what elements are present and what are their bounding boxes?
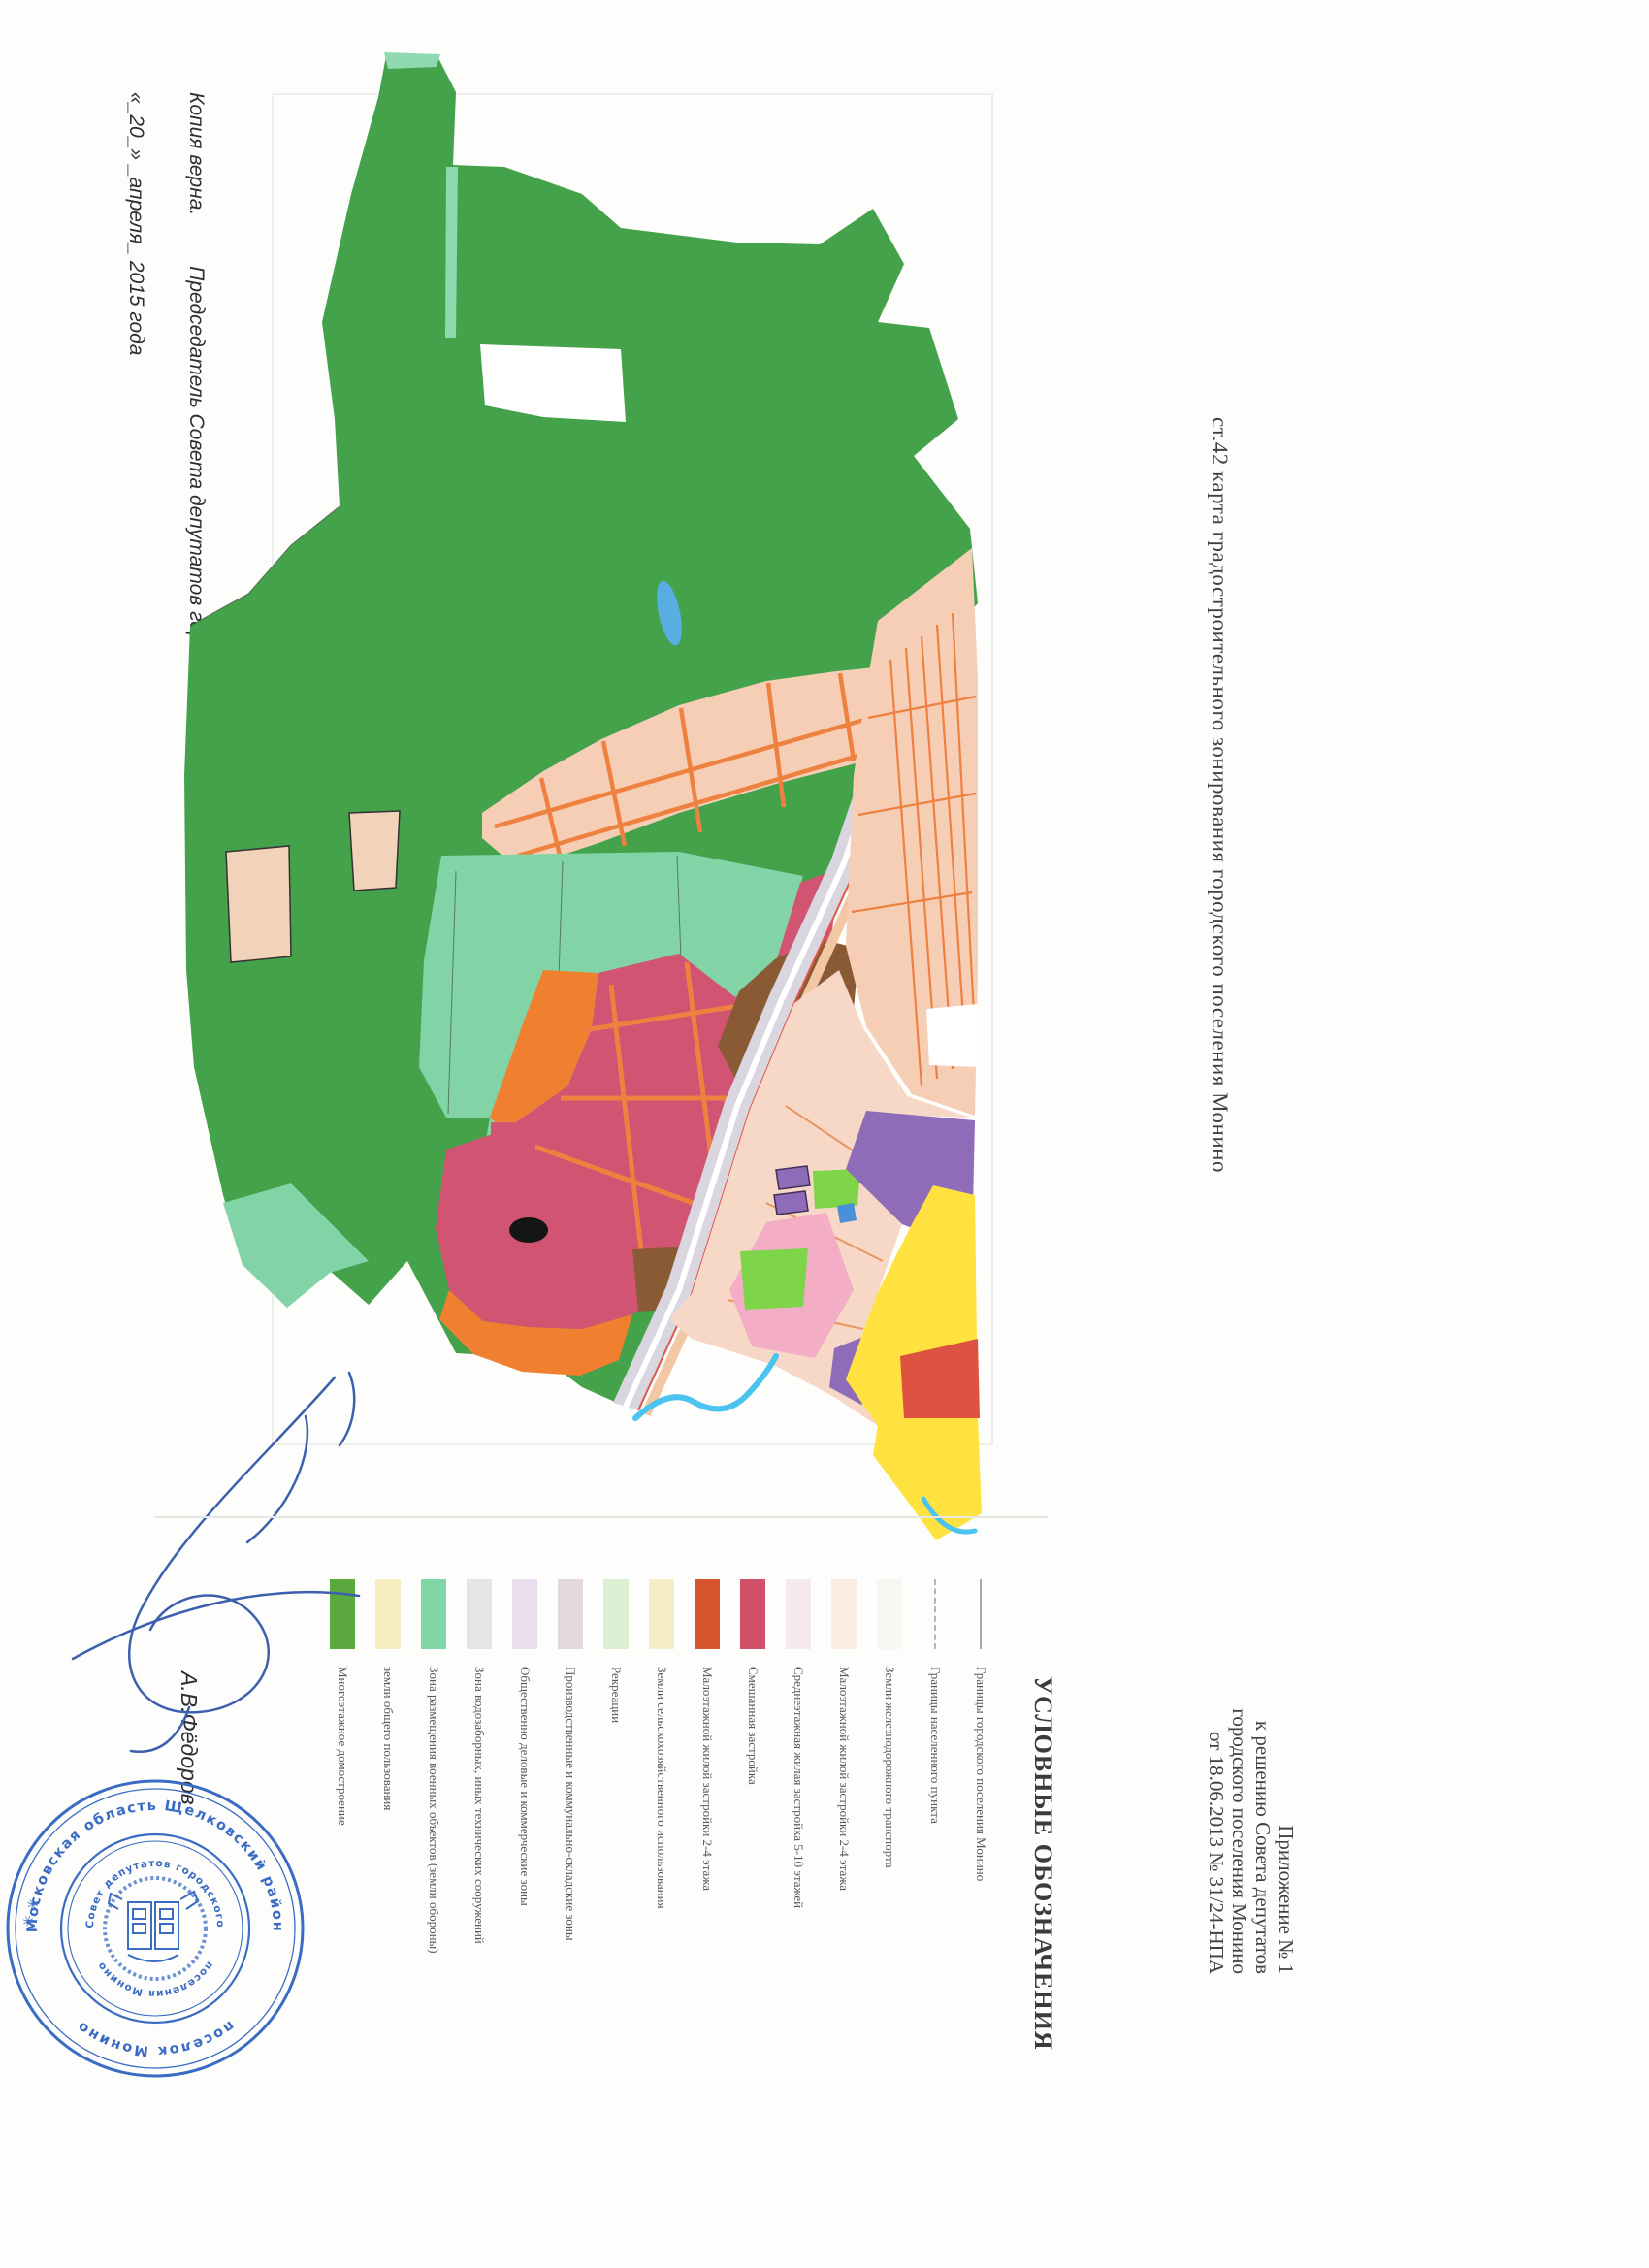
- map-zone-green-patch-1: [740, 1248, 808, 1310]
- legend-swatch: [512, 1579, 537, 1649]
- legend-row: Земли сельскохозяйственного использовани…: [649, 1579, 674, 2122]
- legend-row: Смешанная застройка: [740, 1579, 765, 2122]
- appendix-line-3: городского поселения Монино: [1228, 1654, 1251, 1974]
- legend-row: Земли железнодорожного транспорта: [877, 1579, 902, 2122]
- appendix-line-4: от 18.06.2013 № 31/24-НПА: [1205, 1654, 1228, 1974]
- legend-row: Границы городского поселения Монино: [968, 1579, 993, 2122]
- legend-swatch: [877, 1579, 902, 1649]
- map-blue-rect: [837, 1203, 857, 1223]
- scanned-page: { "page": { "appendix": { "lines": [ "Пр…: [0, 0, 1649, 2268]
- legend-label: Рекреации: [608, 1649, 624, 1723]
- appendix-line-2: к решению Совета депутатов: [1251, 1654, 1275, 1974]
- legend-row: Общественно деловые и коммерческие зоны: [512, 1579, 537, 2122]
- legend-label: Смешанная застройка: [745, 1649, 760, 1785]
- legend-swatch: [467, 1579, 492, 1649]
- boundary-line-symbol: [980, 1579, 982, 1649]
- map-parcel-tan-1: [349, 811, 400, 891]
- legend-row: Малоэтажной жилой застройки 2-4 этажа: [695, 1579, 720, 2122]
- legend-label: Границы населенного пункта: [927, 1649, 943, 1824]
- legend-label: Земли сельскохозяйственного использовани…: [654, 1649, 669, 1909]
- legend-label: Земли железнодорожного транспорта: [882, 1649, 897, 1868]
- map-black-oval: [509, 1217, 548, 1243]
- legend-label: Среднеэтажная жилая застройка 5-10 этаже…: [791, 1649, 806, 1908]
- legend-title: УСЛОВНЫЕ ОБОЗНАЧЕНИЯ: [1028, 1676, 1057, 2122]
- map-parcel-tan-2: [226, 846, 291, 962]
- signature-svg: [15, 1339, 383, 1775]
- legend-row: Зона размещения военных объектов (земли …: [421, 1579, 446, 2122]
- legend-swatch: [603, 1579, 629, 1649]
- legend-row: Рекреации: [603, 1579, 629, 2122]
- signature: [15, 1339, 383, 1775]
- map-white-patch: [926, 1004, 978, 1067]
- legend-label: Малоэтажной жилой застройки 2-4 этажа: [699, 1649, 715, 1891]
- legend-row: Среднеэтажная жилая застройка 5-10 этаже…: [786, 1579, 811, 2122]
- legend-label: Зона водозаборных, иных технических соор…: [471, 1649, 487, 1944]
- legend-swatch: [649, 1579, 674, 1649]
- stamp-svg: Московская область Щелковский район посе…: [5, 1775, 306, 2086]
- map-zone-yellow-2: [873, 1416, 982, 1540]
- legend-swatch: [421, 1579, 446, 1649]
- stamp-inner-bottom-text: поселения Монино: [95, 1960, 215, 1999]
- legend-row: Границы населенного пункта: [922, 1579, 948, 2122]
- official-stamp: Московская область Щелковский район посе…: [5, 1775, 306, 2086]
- certification-date: «_20_» _апреля_ 2015 года: [124, 92, 147, 355]
- legend-swatch: [558, 1579, 583, 1649]
- legend-swatch: [695, 1579, 720, 1649]
- stamp-emblem-icon: [105, 1878, 206, 1979]
- legend-row: Малоэтажной жилой застройки 2-4 этажа: [831, 1579, 857, 2122]
- map-zone-purple-r1: [776, 1166, 810, 1189]
- map-teal-cap: [384, 52, 440, 69]
- scan-artifact-line: [155, 1516, 1048, 1518]
- legend-swatch: [831, 1579, 857, 1649]
- legend-swatch: [786, 1579, 811, 1649]
- appendix-block: Приложение № 1 к решению Совета депутато…: [1205, 1654, 1298, 1974]
- legend-label: Общественно деловые и коммерческие зоны: [517, 1649, 533, 1906]
- map-zone-purple-r2: [774, 1191, 808, 1215]
- legend-label: Зона размещения военных объектов (земли …: [426, 1649, 441, 1954]
- zoning-map: [145, 39, 1018, 1552]
- boundary-dashed-symbol: [934, 1579, 936, 1649]
- legend-row: Зона водозаборных, иных технических соор…: [467, 1579, 492, 2122]
- legend: УСЛОВНЫЕ ОБОЗНАЧЕНИЯ Границы городского …: [309, 1579, 1057, 2122]
- document-sheet: Приложение № 1 к решению Совета депутато…: [0, 0, 1649, 2268]
- map-teal-sliver: [445, 167, 458, 338]
- legend-swatch: [740, 1579, 765, 1649]
- appendix-line-1: Приложение № 1: [1275, 1654, 1298, 1974]
- zoning-map-svg: [145, 39, 1018, 1552]
- signature-strokes: [73, 1373, 359, 1752]
- map-title: ст.42 карта градостроительного зонирован…: [1207, 417, 1232, 1290]
- legend-row: Производственные и коммунально-складские…: [558, 1579, 583, 2122]
- legend-label: Границы городского поселения Монино: [973, 1649, 988, 1881]
- legend-label: Производственные и коммунально-складские…: [563, 1649, 578, 1941]
- legend-label: Малоэтажной жилой застройки 2-4 этажа: [836, 1649, 852, 1891]
